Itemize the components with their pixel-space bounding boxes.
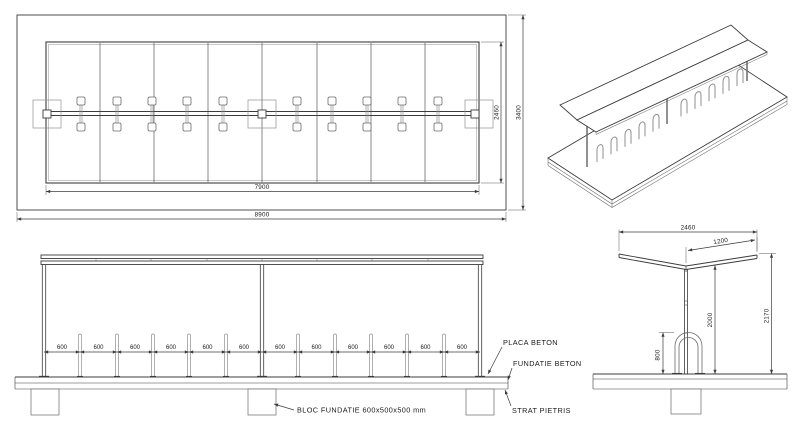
dim-label-spacing: 600: [239, 345, 250, 351]
side-slab: [593, 374, 787, 389]
front-rack-hoops: [77, 334, 447, 377]
front-posts: [39, 265, 485, 378]
iso-view: [548, 25, 787, 208]
front-dim-spacing: 600 600 600 600 600 600 600 600 600 600 …: [44, 345, 480, 352]
side-dim-roof-half: 1200: [686, 237, 757, 263]
dim-label-roof-length: 7900: [255, 184, 270, 191]
plan-dim-slab-length: 8900: [17, 212, 506, 223]
technical-drawing: 7900 8900 2460 3400: [0, 0, 800, 433]
dim-label-side-width: 2460: [681, 225, 696, 232]
dim-label-spacing: 600: [93, 345, 104, 351]
side-dim-width: 2460: [619, 225, 757, 252]
dim-label-rack-height: 800: [655, 349, 662, 360]
side-dim-total-height: 2170: [759, 254, 776, 375]
dim-label-slab-length: 8900: [255, 212, 270, 219]
side-elevation: 2460 1200 2000 2170 800: [593, 225, 787, 415]
dim-label-slab-width: 3400: [516, 105, 523, 120]
dim-label-spacing: 600: [275, 345, 286, 351]
dim-label-spacing: 600: [457, 345, 468, 351]
side-dim-rack-height: 800: [655, 333, 675, 375]
dim-label-spacing: 600: [384, 345, 395, 351]
dim-label-total-height: 2170: [764, 308, 771, 323]
dim-label-spacing: 600: [130, 345, 141, 351]
front-elevation: 600 600 600 600 600 600 600 600 600 600 …: [15, 255, 582, 415]
side-post: [685, 269, 688, 374]
label-strat-pietris: STRAT PIETRIS: [512, 406, 571, 415]
label-placa-beton: PLACA BETON: [503, 338, 558, 347]
label-fundatie-beton: FUNDATIE BETON: [513, 359, 582, 368]
dim-label-spacing: 600: [166, 345, 177, 351]
front-roof: [41, 255, 483, 265]
front-slab: [15, 377, 508, 389]
plan-view: 7900 8900 2460 3400: [17, 15, 526, 222]
dim-label-spacing: 600: [202, 345, 213, 351]
dim-label-spacing: 600: [348, 345, 359, 351]
drawing-sheet: 7900 8900 2460 3400: [0, 0, 800, 433]
dim-label-clear-height: 2000: [707, 312, 714, 327]
side-rack-hoop: [672, 333, 705, 375]
dim-label-spacing: 600: [57, 345, 68, 351]
plan-dim-slab-width: 3400: [508, 15, 526, 210]
dim-label-spacing: 600: [420, 345, 431, 351]
dim-label-spacing: 600: [311, 345, 322, 351]
side-roof: [619, 254, 757, 272]
dim-label-roof-width: 2460: [494, 105, 501, 120]
side-foundation-block: [671, 389, 701, 414]
label-bloc-fundatie: BLOC FUNDATIE 600x500x500 mm: [297, 406, 426, 415]
side-dim-clear-height: 2000: [707, 266, 715, 375]
